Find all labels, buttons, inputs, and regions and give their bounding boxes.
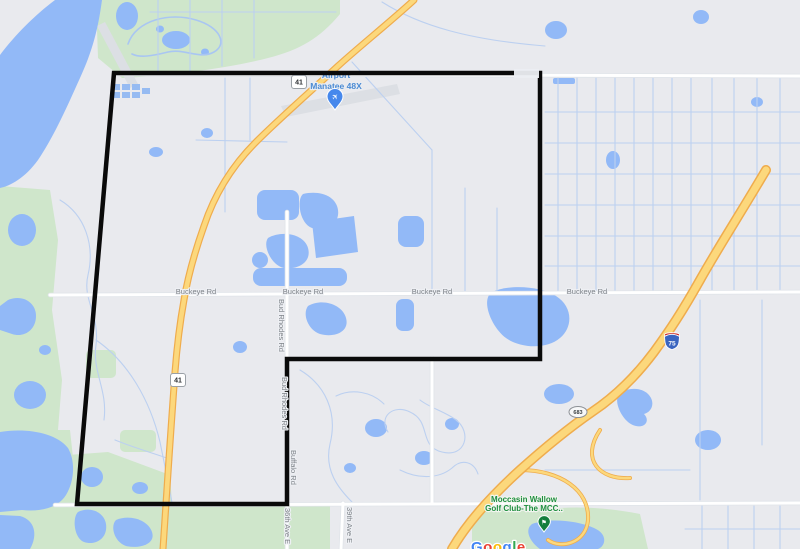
us41-shield-north: 41 [292,76,307,89]
google-logo[interactable]: Google [471,539,526,549]
us41-shield-north-num: 41 [295,80,303,87]
road-label-buffalo: Buffalo Rd [289,450,298,485]
us41-shield-south: 41 [171,374,186,387]
golf-label-line2: Golf Club-The MCC.. [485,504,563,513]
road-label-36th-ave: 36th Ave E [283,508,292,544]
i75-shield: 75 [665,333,680,350]
google-logo-letter: e [517,539,526,549]
boundary-label-gap [514,69,539,78]
google-logo-letter: o [493,539,503,549]
us41-shield-south-num: 41 [174,378,182,385]
i75-shield-num: 75 [668,341,676,348]
road-label-bud-rhodes-1: Bud Rhodes Rd [277,299,286,352]
fl683-shield: 683 [569,407,587,418]
road-label-buckeye-3: Buckeye Rd [412,287,452,296]
google-logo-letter: g [503,539,513,549]
road-label-bud-rhodes-2: Bud Rhodes Rd [280,377,289,430]
road-label-buckeye-4: Buckeye Rd [567,287,607,296]
road-label-buckeye-2: Buckeye Rd [283,287,323,296]
golf-flag-icon: ⚑ [541,519,547,527]
map-svg[interactable]: Airport Buckeye Rd Buckeye Rd Buckeye Rd… [0,0,800,549]
road-label-buckeye-1: Buckeye Rd [176,287,216,296]
google-logo-letter: G [471,539,483,549]
fl683-shield-num: 683 [573,410,582,416]
map-canvas[interactable]: Airport Buckeye Rd Buckeye Rd Buckeye Rd… [0,0,800,549]
road-label-39th-ave: 39th Ave E [345,507,354,543]
google-logo-letter: o [483,539,493,549]
golf-label-line1: Moccasin Wallow [491,495,558,504]
